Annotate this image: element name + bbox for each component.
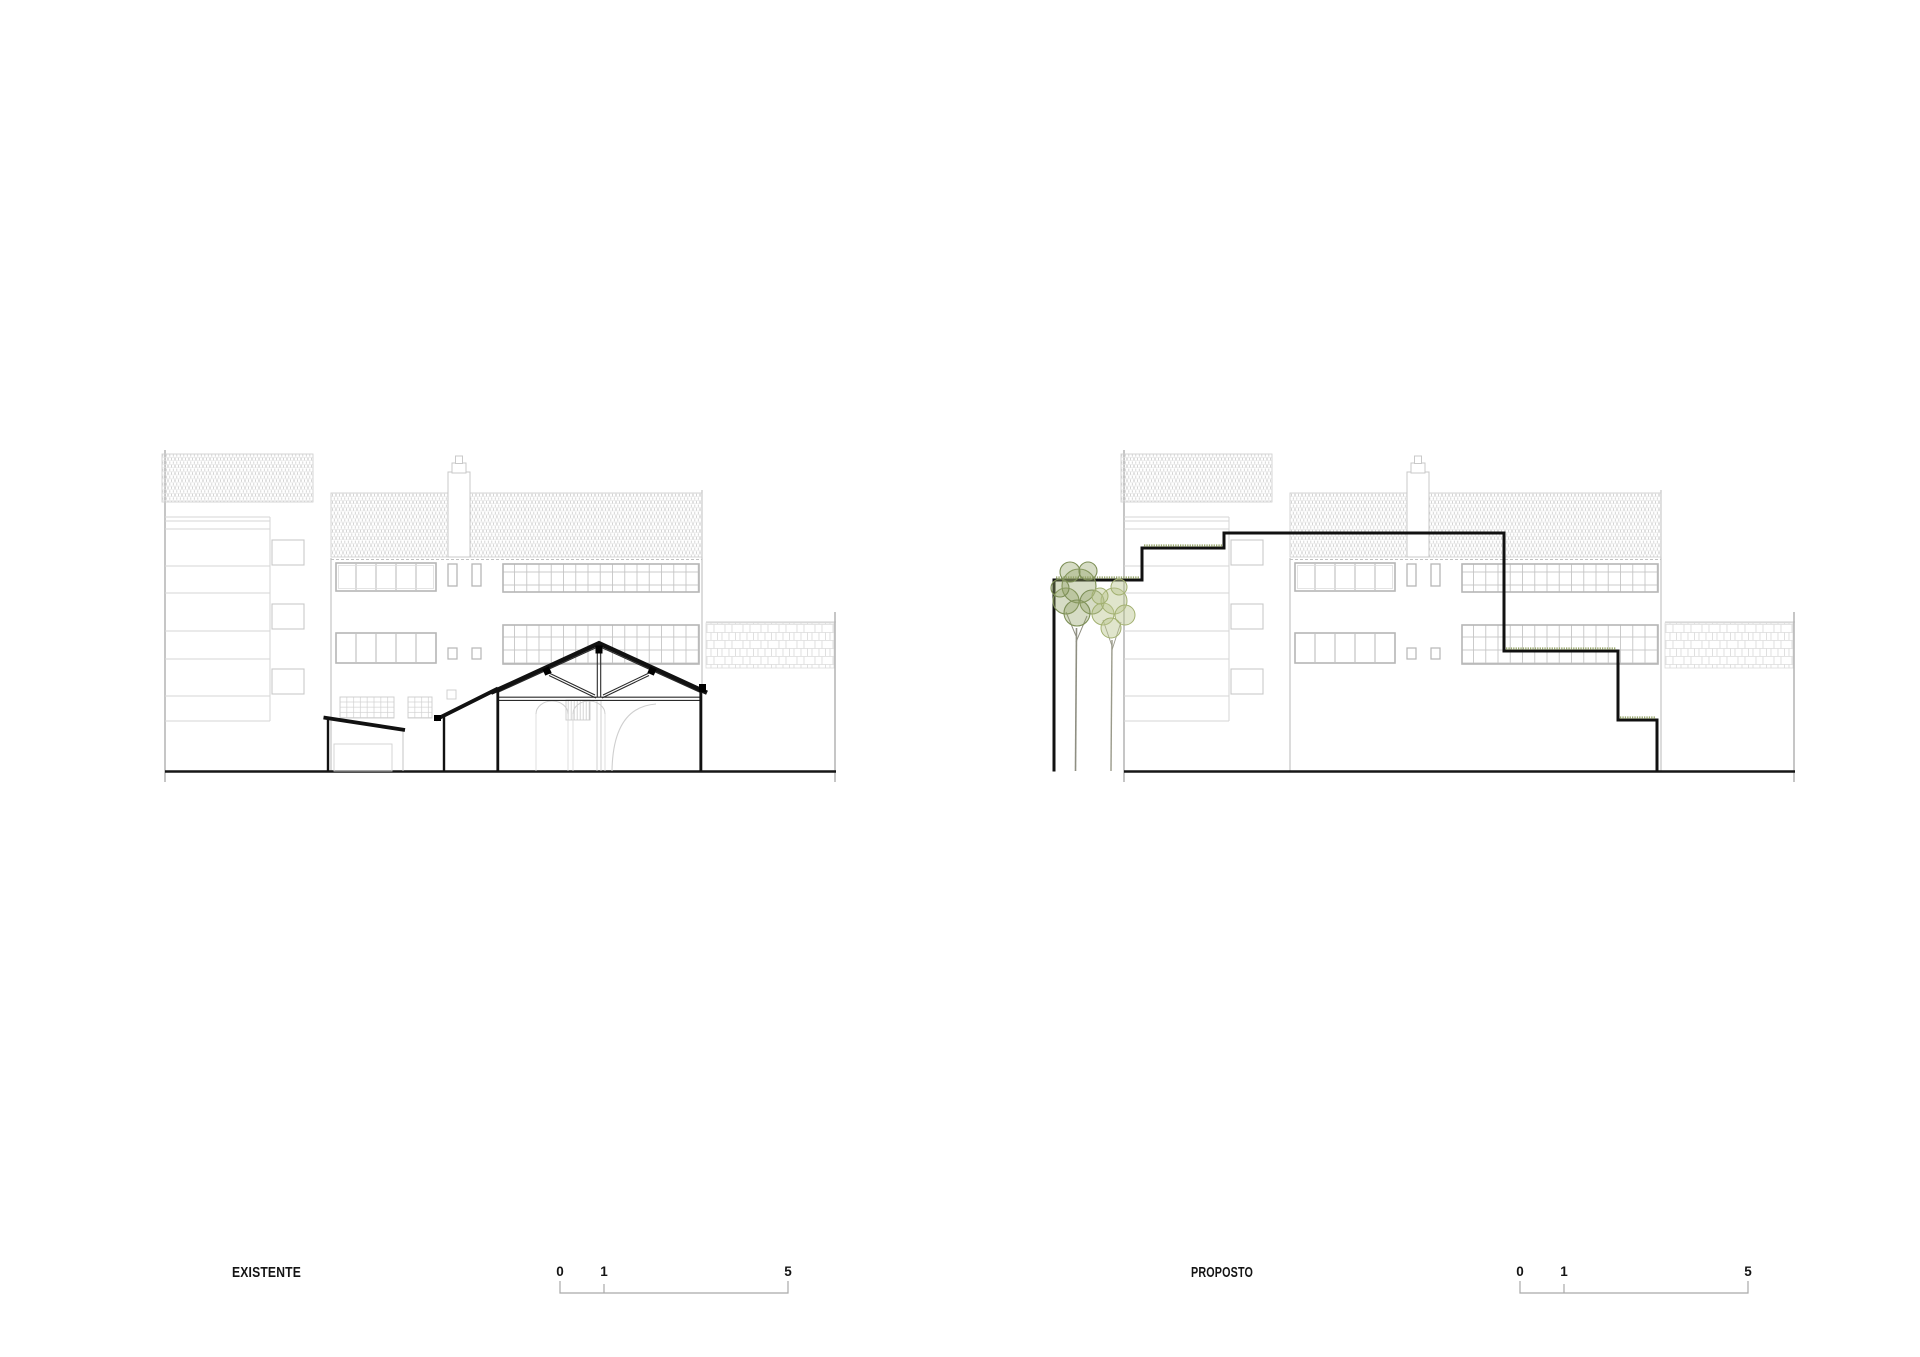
drawing-existente	[162, 450, 836, 782]
scale-tick-0: 0	[1516, 1264, 1524, 1279]
shed-roof	[324, 718, 406, 731]
scale-bar-existente: 0 1 5	[556, 1264, 792, 1293]
lean-to-roof	[436, 689, 498, 720]
title-block: EXISTENTE PROPOSTO	[232, 1265, 1253, 1281]
scale-tick-5: 5	[784, 1264, 792, 1279]
drawing-sheet: EXISTENTE PROPOSTO 0 1 5 0 1 5	[0, 0, 1920, 1357]
tree-trunk	[1103, 620, 1121, 771]
scale-tick-1: 1	[600, 1264, 608, 1279]
elevations-svg: EXISTENTE PROPOSTO 0 1 5 0 1 5	[0, 0, 1920, 1357]
tree-canopy-light	[1092, 579, 1135, 638]
scale-bar-line	[560, 1281, 788, 1293]
truss-diagonals	[548, 673, 650, 699]
proposto-label: PROPOSTO	[1191, 1265, 1253, 1281]
truss-bottom-chord	[499, 697, 700, 700]
grid-panel	[340, 697, 394, 718]
scale-bar-line	[1520, 1281, 1748, 1293]
small-opening	[447, 690, 456, 699]
context-proposed	[1121, 450, 1795, 782]
scale-tick-5: 5	[1744, 1264, 1752, 1279]
drawing-proposto	[1051, 450, 1795, 782]
scale-tick-1: 1	[1560, 1264, 1568, 1279]
courtyard-trees	[1051, 562, 1135, 771]
tree-trunk	[1066, 612, 1087, 771]
existente-label: EXISTENTE	[232, 1265, 301, 1281]
scale-bar-proposto: 0 1 5	[1516, 1264, 1752, 1293]
scale-tick-0: 0	[556, 1264, 564, 1279]
grid-panel	[408, 697, 432, 718]
